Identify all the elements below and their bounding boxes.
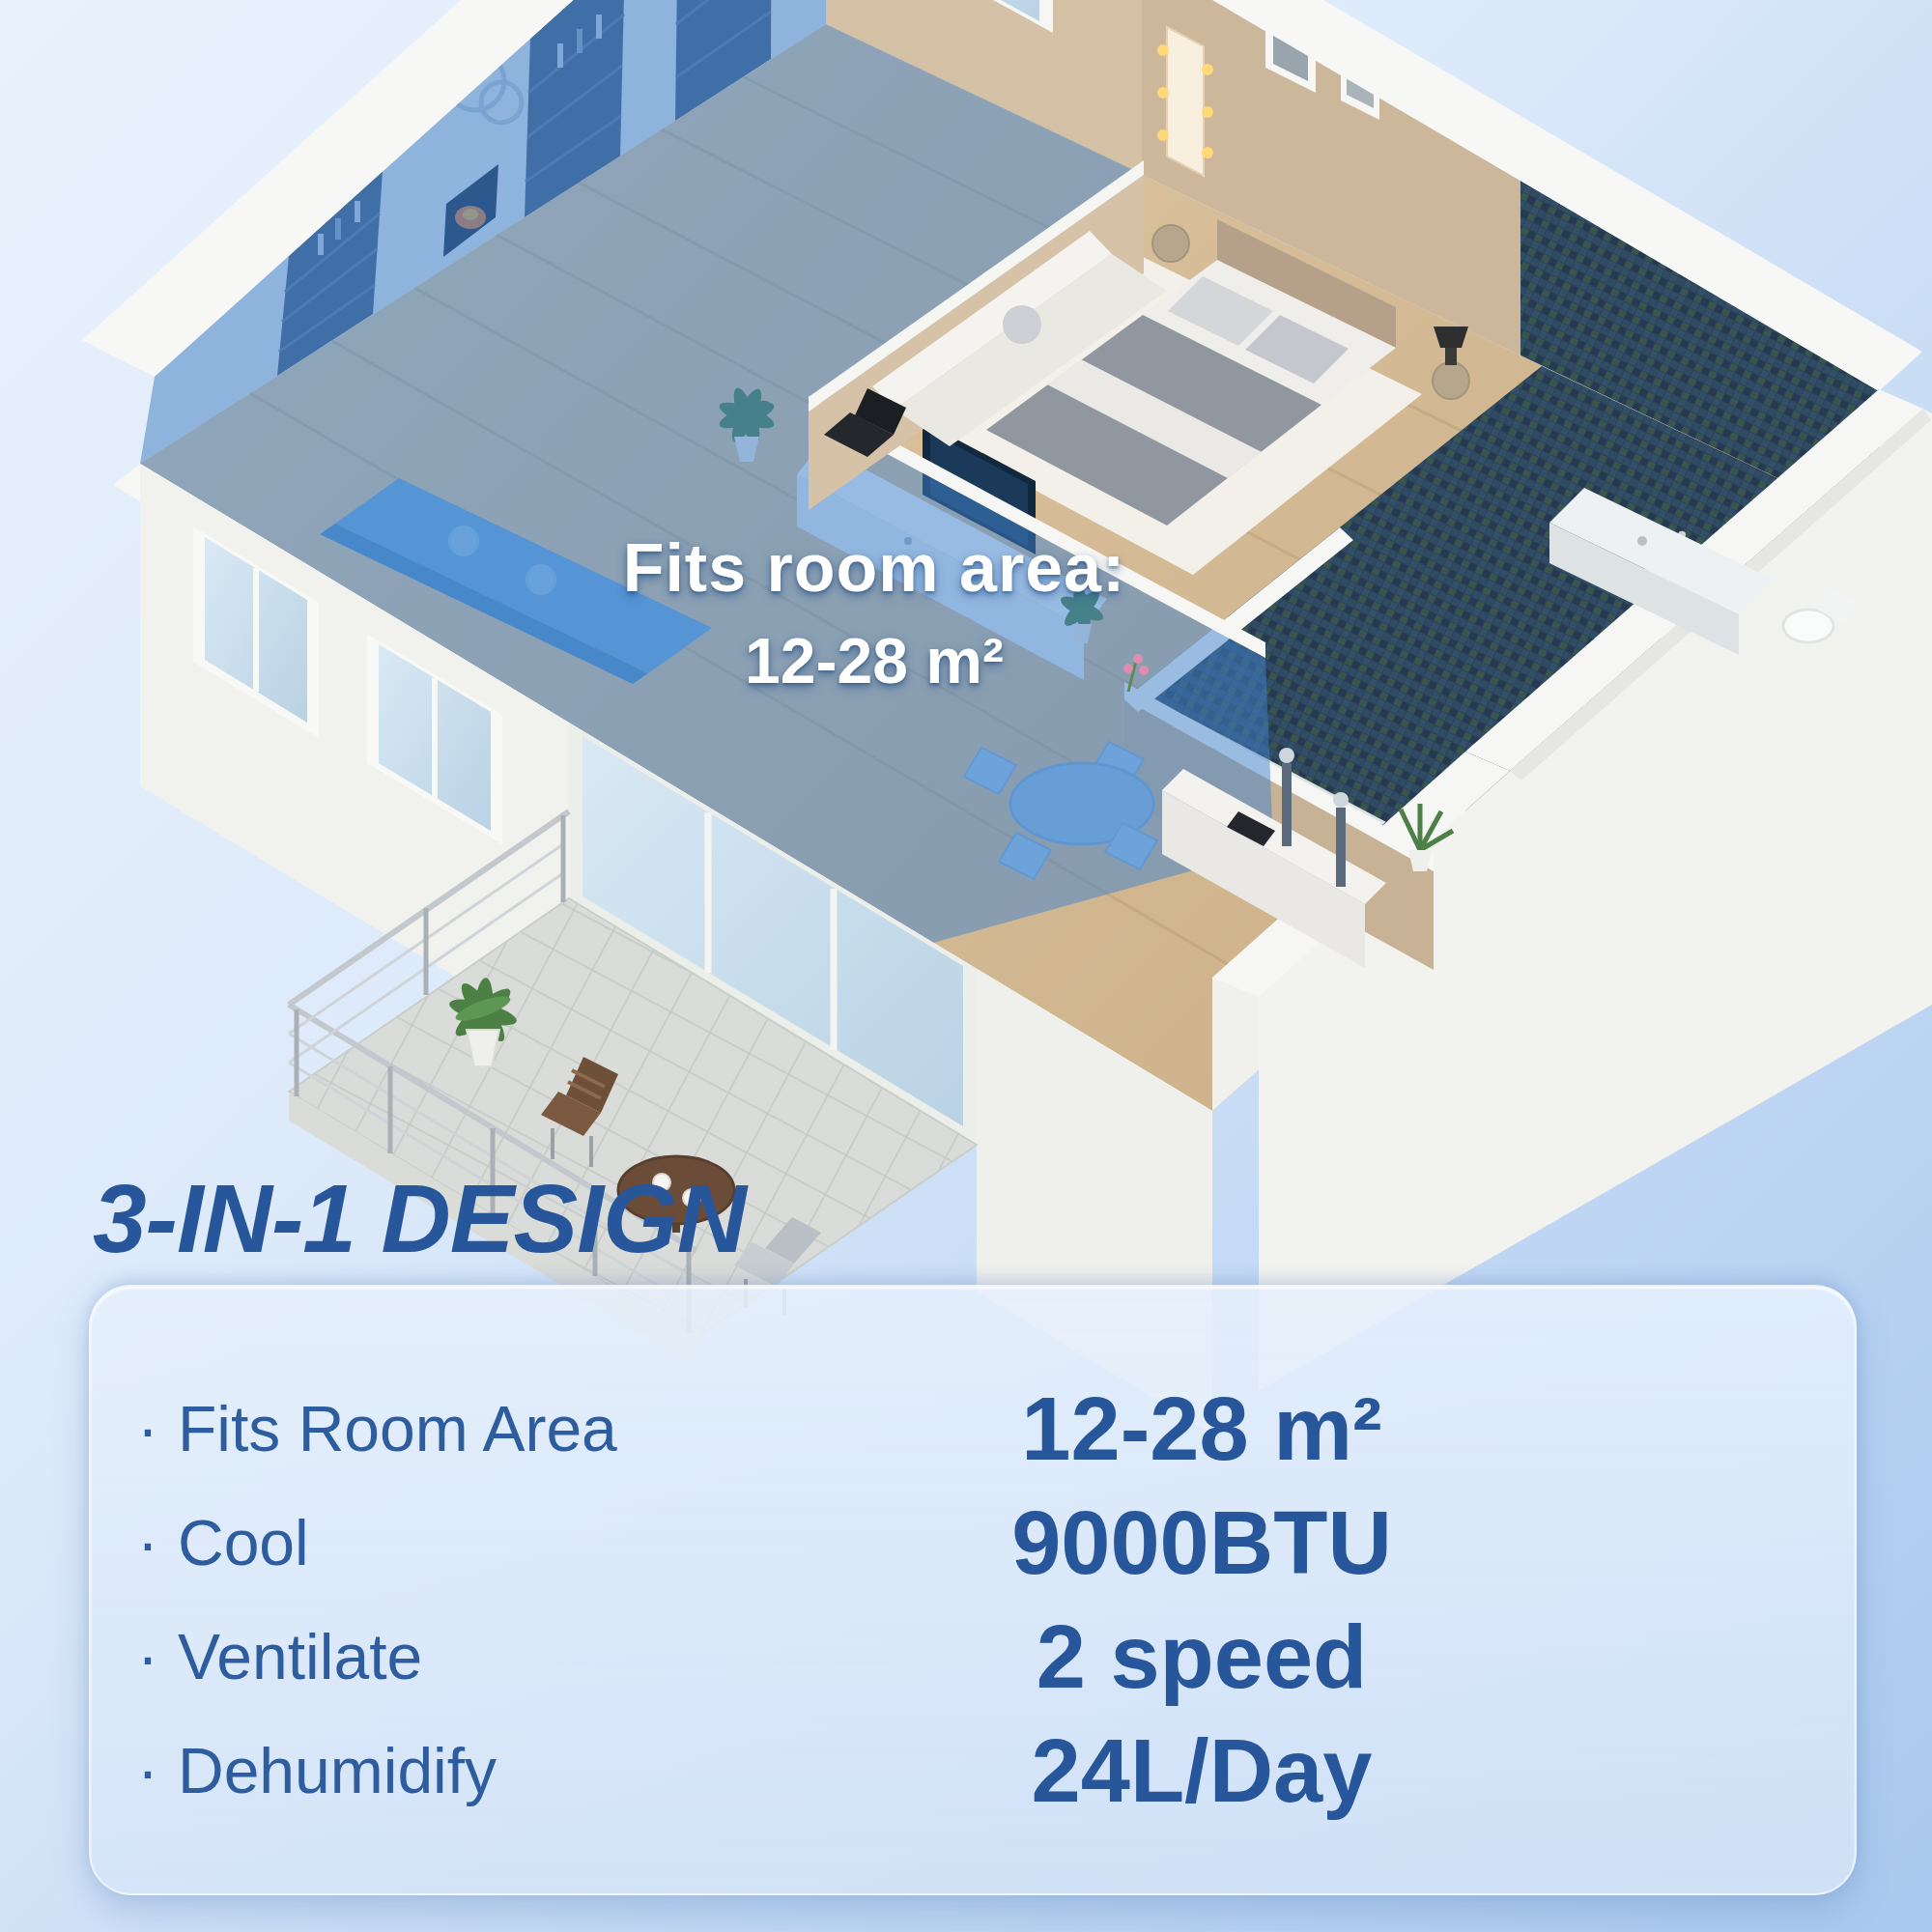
nightstand [1433, 362, 1469, 399]
page: Fits room area: 12-28 m² 3-IN-1 DESIGN ·… [0, 0, 1932, 1932]
feature-label: Cool [178, 1507, 309, 1578]
feature-bullet: · [137, 1735, 158, 1806]
fits-room-area-label: Fits room area: [415, 529, 1333, 607]
feature-label: Ventilate [178, 1621, 422, 1692]
feature-value: 9000BTU [864, 1486, 1540, 1600]
features-panel: ·Fits Room Area ·Cool ·Ventilate ·Dehumi… [89, 1285, 1857, 1895]
feature-row: ·Ventilate [137, 1600, 617, 1714]
nightstand [1152, 225, 1189, 262]
feature-values: 12-28 m² 9000BTU 2 speed 24L/Day [864, 1372, 1540, 1828]
toilet [1783, 610, 1833, 642]
feature-row: ·Fits Room Area [137, 1372, 617, 1486]
feature-bullet: · [137, 1507, 158, 1578]
faucet [1637, 536, 1647, 546]
feature-row: ·Cool [137, 1486, 617, 1600]
section-heading: 3-IN-1 DESIGN [93, 1163, 746, 1274]
feature-value: 24L/Day [864, 1714, 1540, 1828]
fits-room-area-value: 12-28 m² [415, 624, 1333, 697]
feature-label: Fits Room Area [178, 1393, 617, 1464]
feature-value: 2 speed [864, 1600, 1540, 1714]
feature-bullet: · [137, 1621, 158, 1692]
feature-labels: ·Fits Room Area ·Cool ·Ventilate ·Dehumi… [137, 1372, 617, 1828]
feature-value: 12-28 m² [864, 1372, 1540, 1486]
feature-bullet: · [137, 1393, 158, 1464]
room-area-caption: Fits room area: 12-28 m² [415, 529, 1333, 697]
feature-label: Dehumidify [178, 1735, 497, 1806]
feature-row: ·Dehumidify [137, 1714, 617, 1828]
